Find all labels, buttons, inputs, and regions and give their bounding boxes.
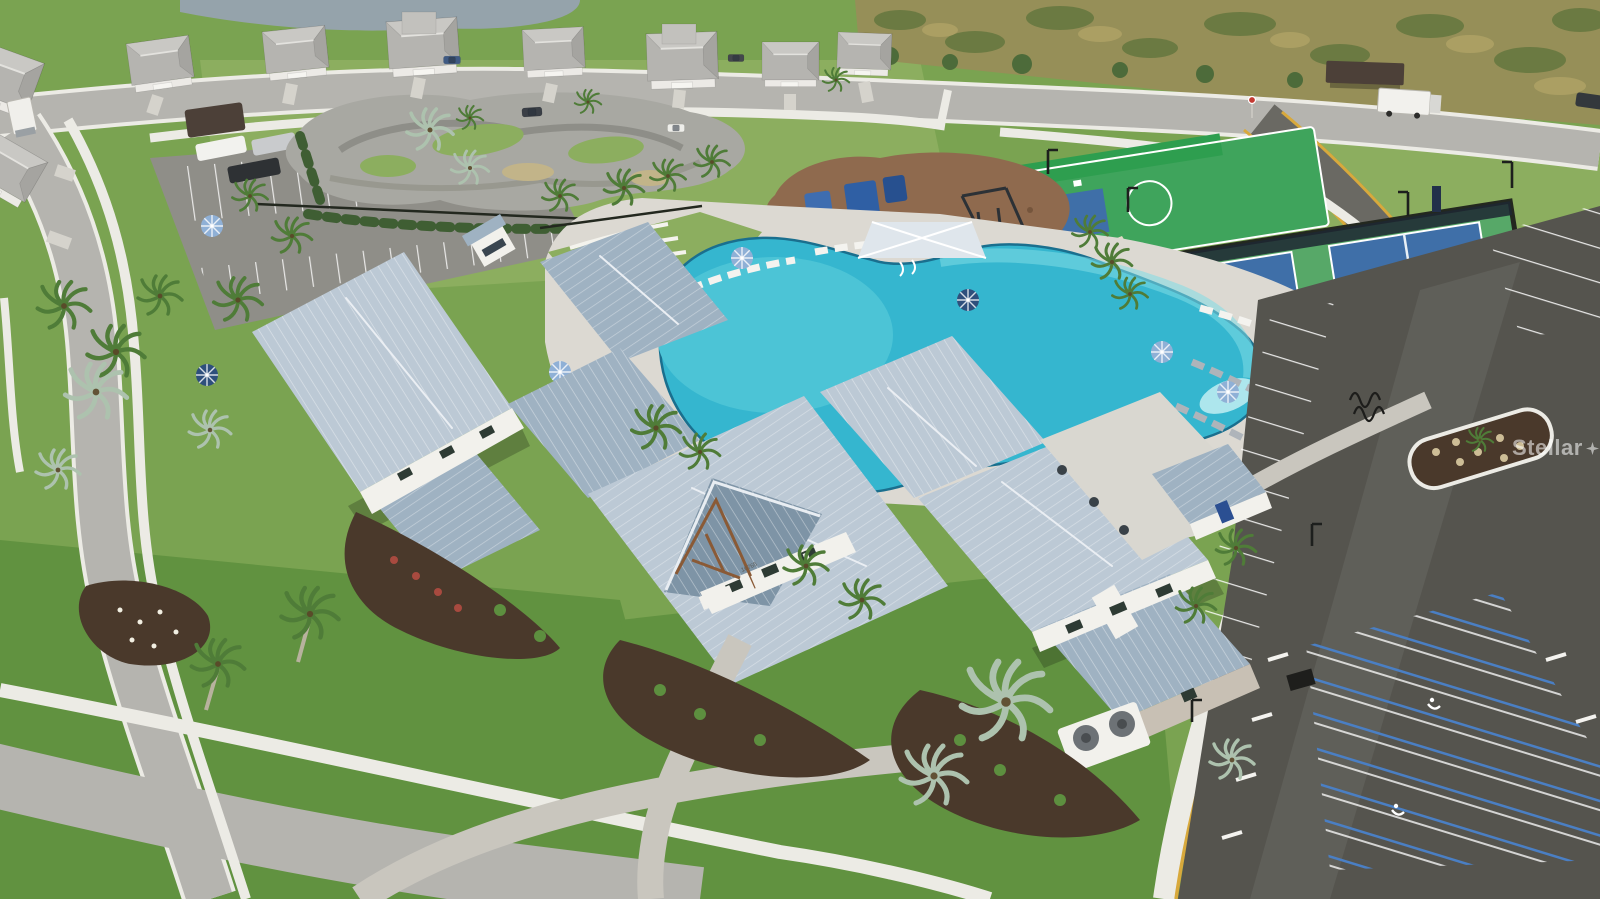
banner-sign [1432,186,1441,212]
bus-shelter [1326,61,1405,91]
house [126,35,195,93]
aerial-scene: 16765 [0,0,1600,899]
house-second-story [402,12,436,34]
house [522,27,586,78]
house [262,25,330,81]
shade-cabana [858,222,986,258]
aerial-photo: 16765 [0,0,1600,899]
watermark-prefix: Stellar [1512,435,1583,461]
watermark: Stellar MLS [1512,435,1600,461]
house [837,32,892,76]
house [762,42,819,87]
star-icon [1586,442,1599,455]
house-second-story [662,24,696,44]
basketball-hoop [1073,180,1082,187]
